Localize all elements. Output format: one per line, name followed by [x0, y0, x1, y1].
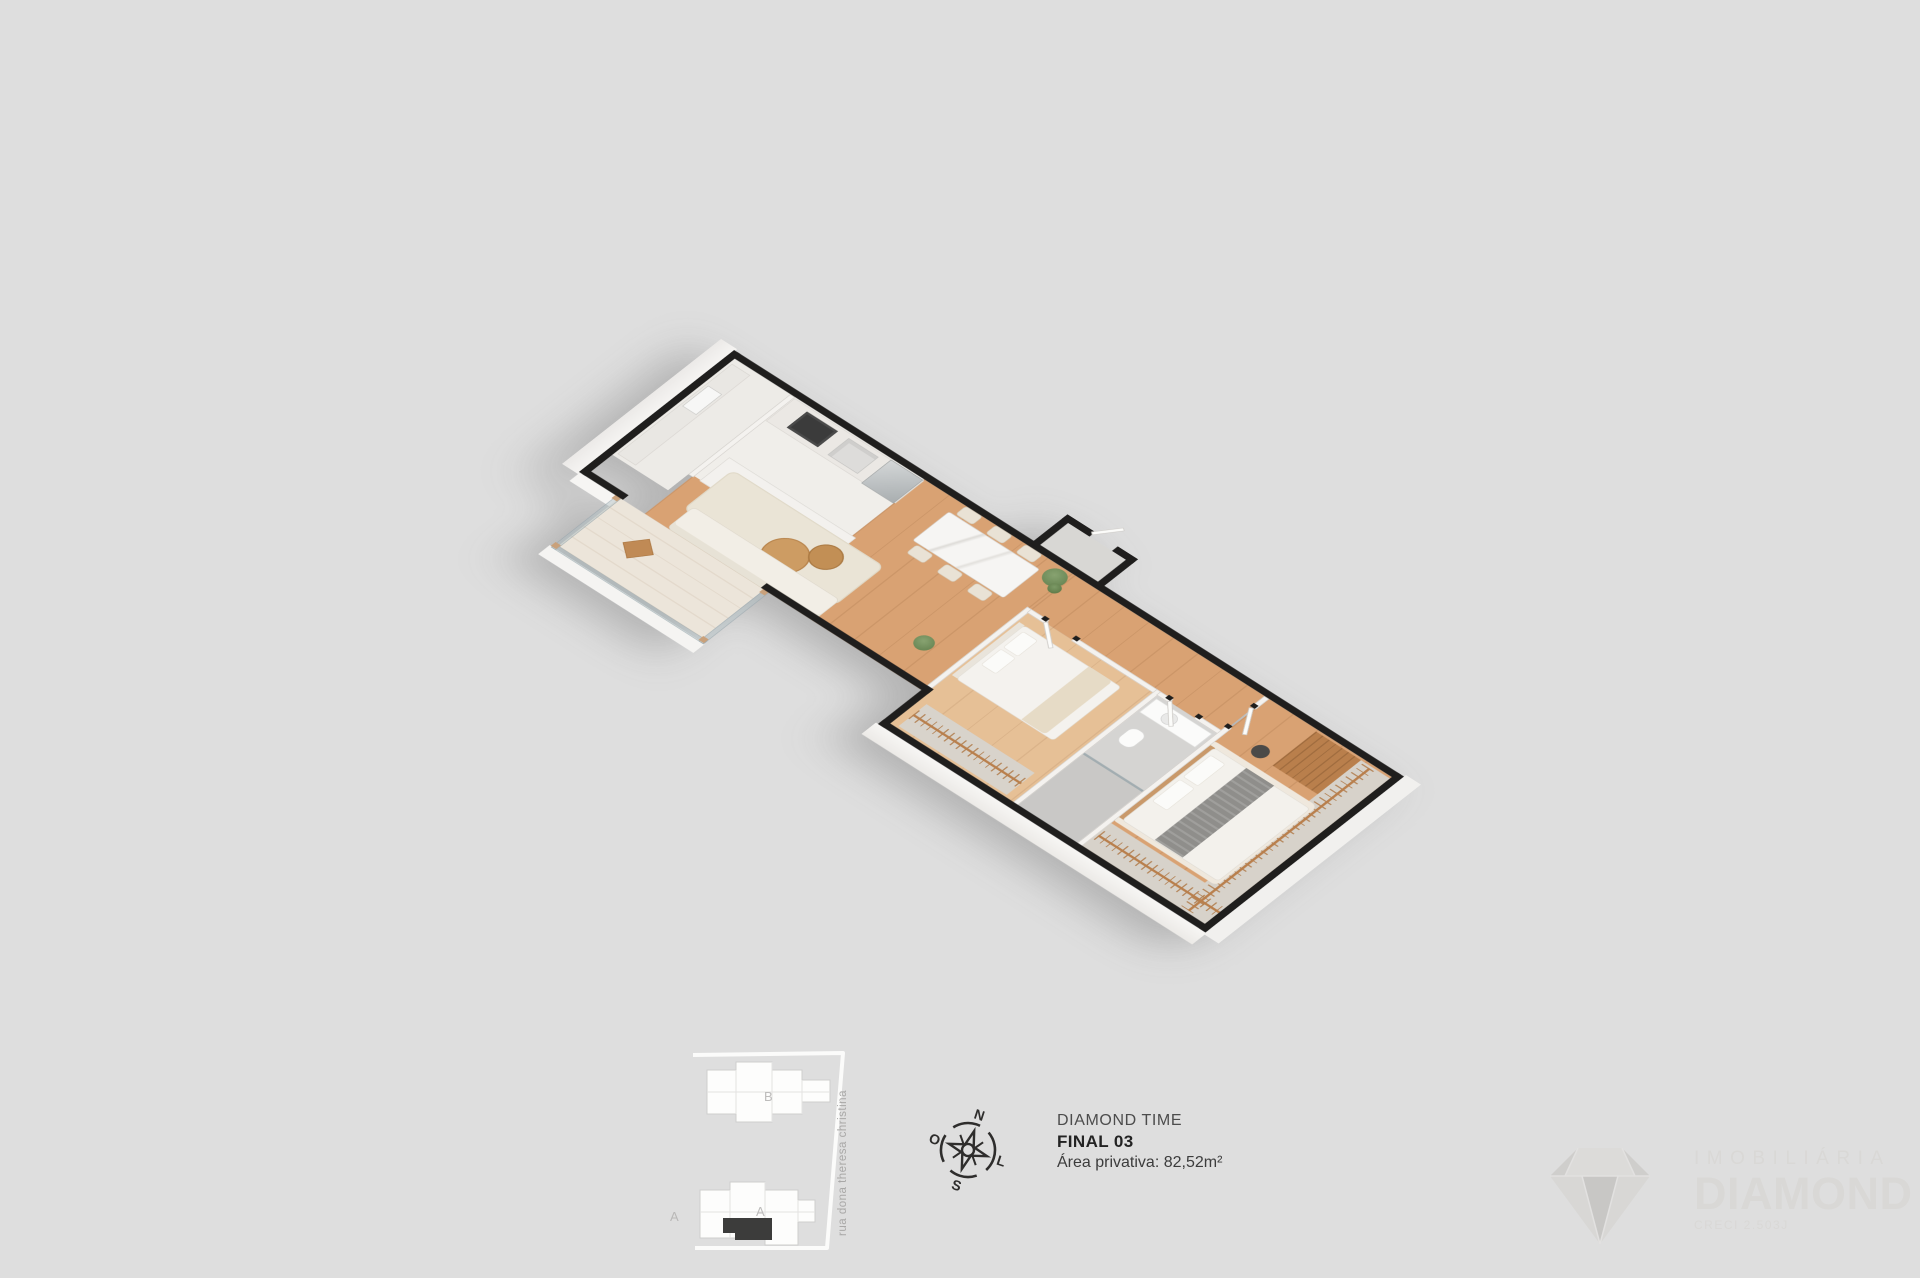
page: B A A rua dona theresa christina N S O L: [0, 0, 1920, 1278]
building-b-label: B: [764, 1089, 773, 1104]
building-a: A: [700, 1182, 815, 1245]
compass-e: L: [995, 1152, 1009, 1170]
project-name: DIAMOND TIME: [1057, 1110, 1222, 1131]
diamond-icon: [1540, 1136, 1660, 1248]
brand-watermark: IMOBILIÁRIA DIAMOND CRECI 2.503J: [1540, 1136, 1912, 1248]
compass-s: S: [950, 1176, 964, 1194]
brand-line-main: DIAMOND: [1694, 1170, 1912, 1218]
block-label: A: [670, 1209, 679, 1224]
brand-line-creci: CRECI 2.503J: [1694, 1218, 1912, 1232]
unit-info-block: DIAMOND TIME FINAL 03 Área privativa: 82…: [1057, 1110, 1222, 1173]
unit-number: FINAL 03: [1057, 1131, 1222, 1152]
site-plan: B A A rua dona theresa christina: [660, 1040, 890, 1278]
entry-door: [1091, 528, 1124, 536]
compass-n: N: [972, 1106, 987, 1124]
building-a-label: A: [756, 1204, 765, 1219]
street-name: rua dona theresa christina: [837, 1090, 849, 1236]
building-b: B: [707, 1062, 830, 1122]
floor-plan-3d-render: [498, 328, 1431, 962]
brand-line-top: IMOBILIÁRIA: [1694, 1148, 1912, 1170]
compass-rose-icon: N S O L: [926, 1106, 1010, 1194]
balcony-chair: [623, 539, 654, 558]
private-area: Área privativa: 82,52m²: [1057, 1152, 1222, 1173]
